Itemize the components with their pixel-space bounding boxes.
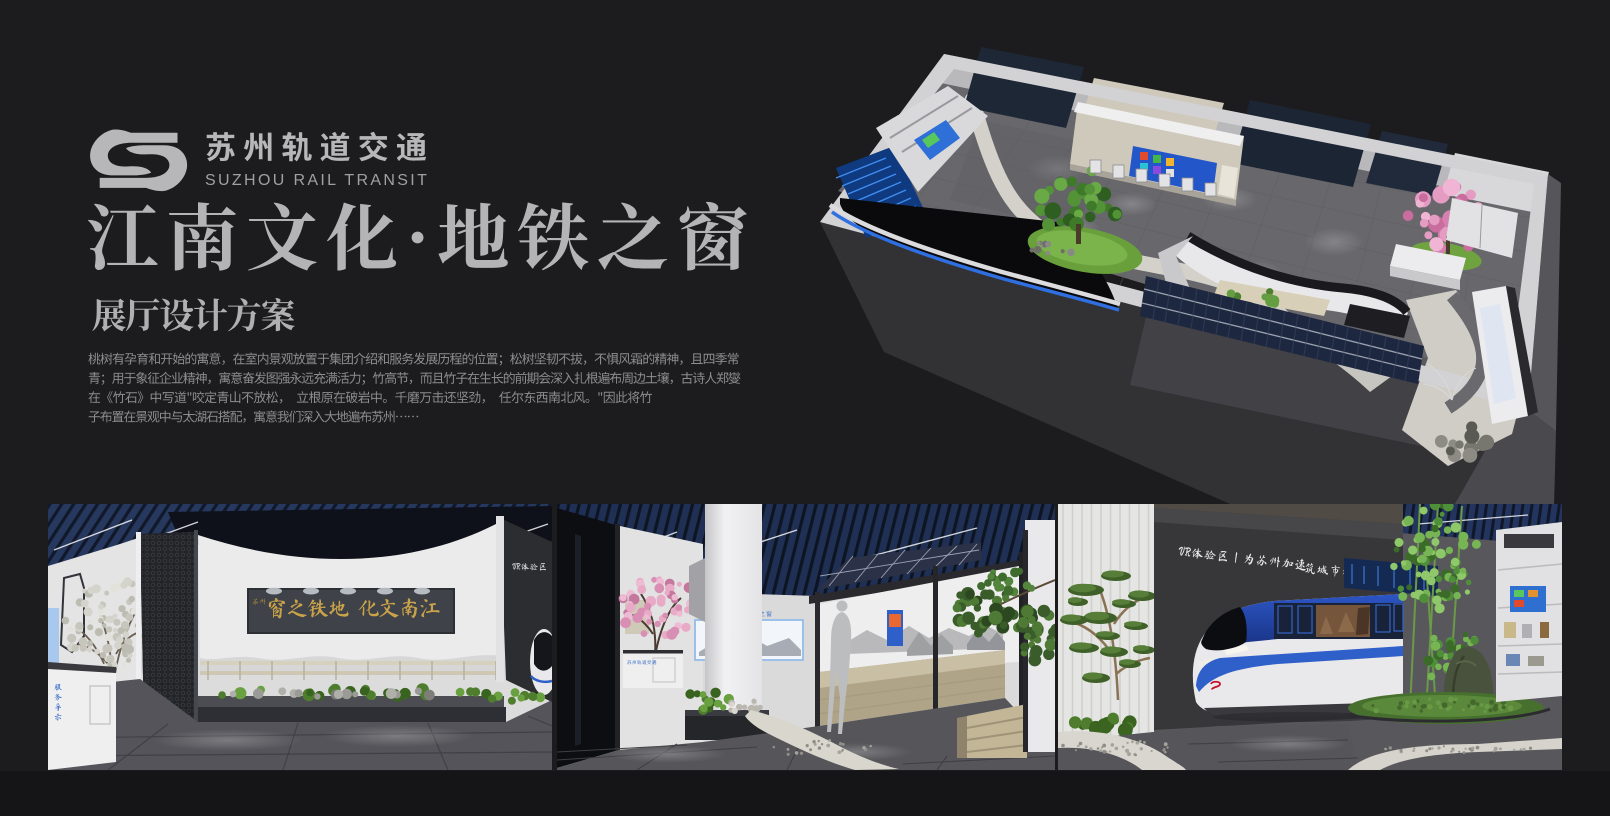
svg-text:SUZHOU RAIL TRANSIT: SUZHOU RAIL TRANSIT [205,172,429,189]
